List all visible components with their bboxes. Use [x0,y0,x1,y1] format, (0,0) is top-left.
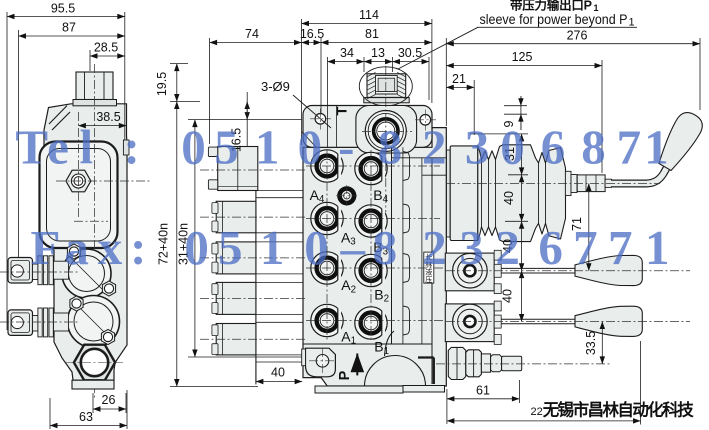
svg-text:114: 114 [359,8,379,22]
svg-text:34: 34 [340,46,354,60]
svg-text:81: 81 [365,27,379,41]
svg-text:26: 26 [102,393,116,407]
svg-text:B: B [374,339,383,355]
svg-text:95.5: 95.5 [51,2,75,16]
svg-text:28.5: 28.5 [94,41,118,55]
svg-text:63: 63 [79,410,93,424]
svg-text:4: 4 [319,194,325,205]
svg-text:40: 40 [502,191,516,205]
svg-text:2: 2 [351,284,356,295]
svg-text:87: 87 [62,21,76,35]
svg-text:19.5: 19.5 [155,72,169,96]
svg-text:B: B [374,287,383,303]
svg-text:61: 61 [476,384,490,398]
svg-text:1: 1 [351,336,356,347]
svg-text:38.5: 38.5 [96,110,120,124]
svg-text:13: 13 [371,46,385,60]
svg-text:T: T [335,106,351,115]
svg-text:74: 74 [245,27,259,41]
svg-text:3-Ø9: 3-Ø9 [261,79,290,94]
svg-text:sleeve for power beyond P: sleeve for power beyond P [480,11,628,27]
svg-text:40: 40 [501,289,515,303]
svg-text:P: P [337,370,353,380]
svg-text:22: 22 [531,406,543,418]
svg-text:40: 40 [271,366,285,380]
svg-text:2: 2 [384,294,389,305]
svg-text:33.5: 33.5 [584,331,598,355]
svg-text:压: 压 [425,276,432,284]
svg-text:125: 125 [512,50,533,64]
svg-text:4: 4 [383,194,389,205]
svg-text:16.5: 16.5 [300,27,324,41]
svg-text:276: 276 [567,29,588,43]
svg-text:B: B [373,187,382,203]
svg-text:1: 1 [629,17,635,29]
svg-text:无锡市昌林自动化科技: 无锡市昌林自动化科技 [542,400,695,420]
svg-text:21: 21 [452,72,466,86]
